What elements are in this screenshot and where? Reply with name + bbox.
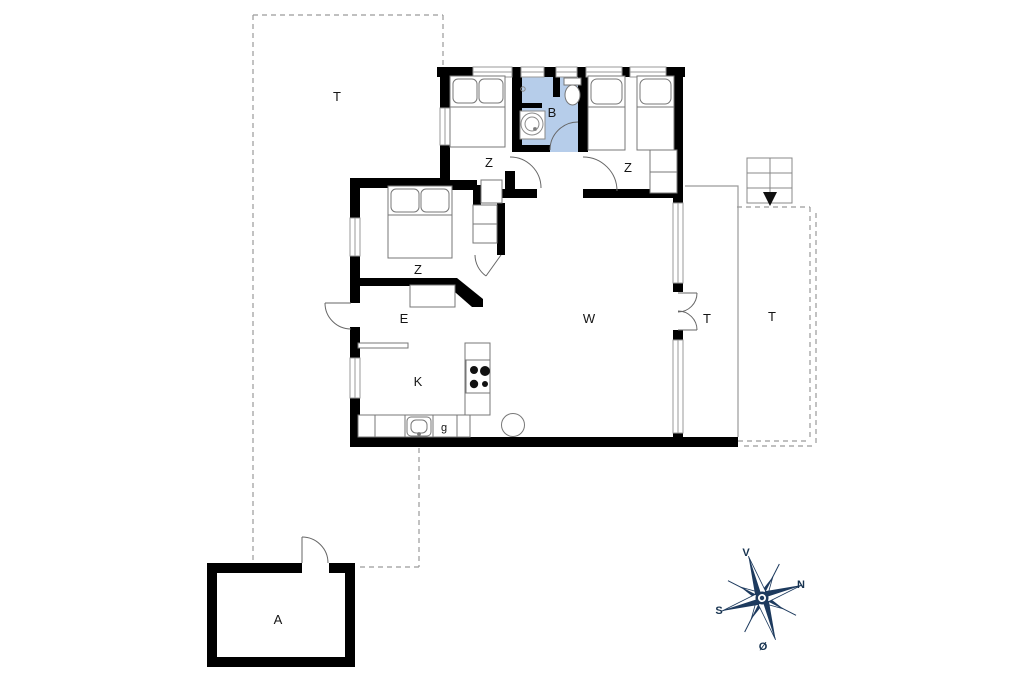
floorplan-canvas: T Z B Z Z E W K g T T A V N S Ø	[0, 0, 1024, 682]
terrace-right-dashed-outline	[737, 207, 816, 446]
terrace-door-top-arc	[678, 293, 697, 312]
label-bedroom-middle: Z	[414, 262, 422, 277]
label-living-room: W	[583, 311, 596, 326]
kitchen-sink	[407, 417, 431, 436]
label-bathroom: B	[548, 105, 557, 120]
round-table	[502, 414, 525, 437]
doors	[325, 122, 697, 330]
label-bedroom-top-left: Z	[485, 155, 493, 170]
compass-label-n: N	[797, 579, 805, 591]
mid-bedroom-door-arc	[475, 255, 486, 276]
terrace-door-bottom-arc	[678, 311, 697, 330]
compass-rose	[708, 543, 815, 653]
hall-right-door-arc	[583, 157, 617, 191]
label-kitchen: K	[414, 374, 423, 389]
label-entry: E	[400, 311, 409, 326]
label-terrace-right: T	[768, 309, 776, 324]
mid-bedroom-door-leaf	[486, 255, 501, 276]
annex-building	[207, 537, 355, 667]
label-annex: A	[274, 612, 283, 627]
compass-label-oe: Ø	[759, 641, 768, 653]
entrance-door-arc	[325, 303, 351, 329]
label-bedroom-top-right: Z	[624, 160, 632, 175]
compass-label-v: V	[742, 547, 750, 559]
floorplan-drawing: T Z B Z Z E W K g T T A V N S Ø	[0, 0, 1024, 682]
annex-door-arc	[302, 537, 328, 563]
toilet	[564, 78, 581, 105]
compass-label-s: S	[715, 605, 722, 617]
washbasin	[520, 111, 545, 139]
terrace-right-solid-boundary	[685, 186, 738, 437]
label-terrace-at-door: T	[703, 311, 711, 326]
stove	[466, 360, 490, 393]
label-kitchen-appliance: g	[441, 422, 447, 434]
label-terrace-left: T	[333, 89, 341, 104]
